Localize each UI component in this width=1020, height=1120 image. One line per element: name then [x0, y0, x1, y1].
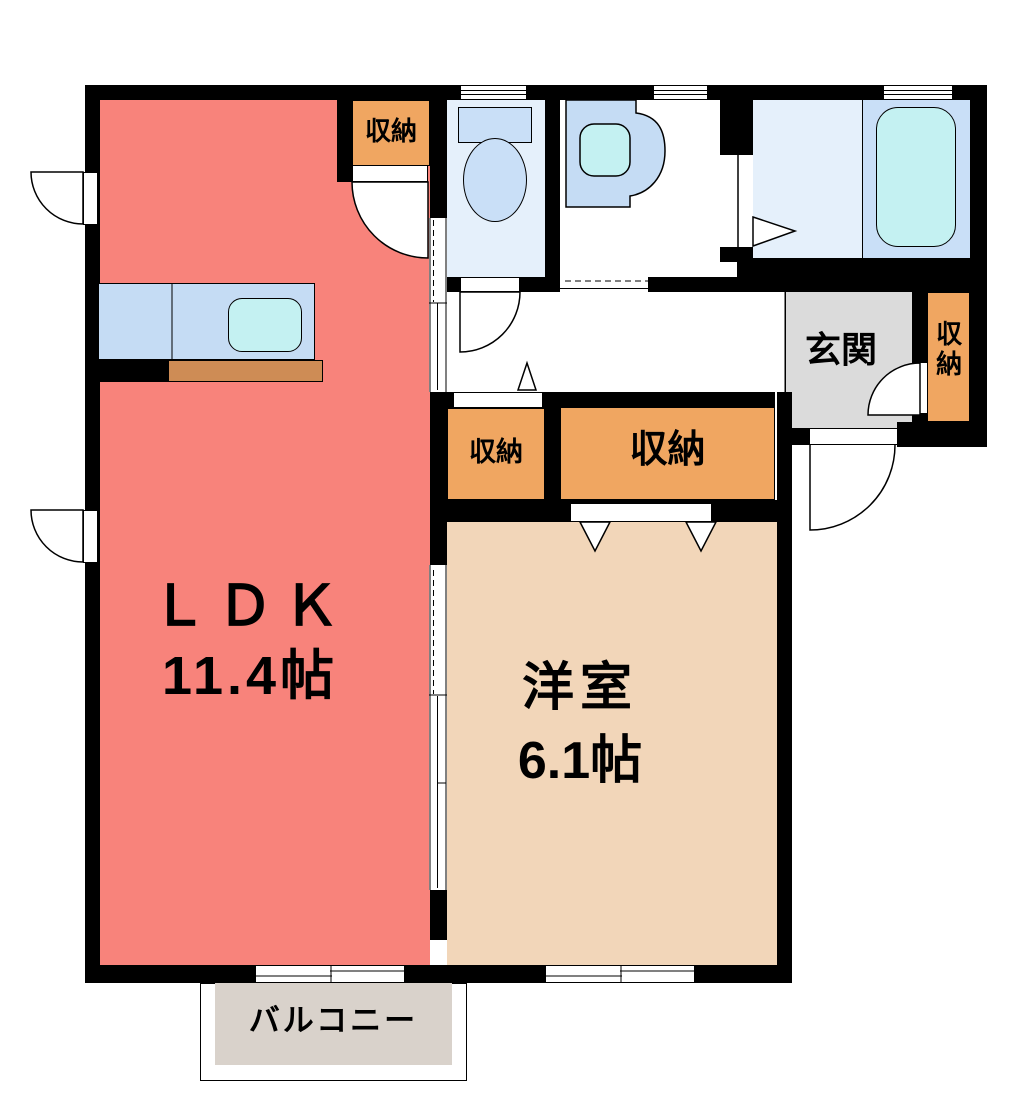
entrance-label: 玄関 [785, 330, 897, 370]
ldk-closet-label: 収納 [352, 117, 430, 146]
western-room-area: 6.1帖 [455, 733, 705, 790]
left-casement-window-1-leaf [83, 172, 98, 225]
hall-closet-small-label: 収納 [447, 438, 545, 468]
wall-right-lower [777, 392, 792, 983]
hall-closet-door-opening [453, 392, 543, 408]
entrance-closet-label: 収納 [933, 320, 962, 380]
wall-top [85, 85, 987, 100]
ldk-room-floor [100, 100, 432, 965]
washroom-window [653, 85, 708, 100]
wall-toilet-washroom [545, 100, 560, 292]
ldk-balcony-window [255, 965, 405, 983]
ldk-closet-door-leaf [352, 165, 428, 182]
ldk-label: ＬＤＫ 11.4帖 [115, 575, 385, 706]
ldk-area: 11.4帖 [115, 647, 385, 706]
wall-entrance-bottom-left [777, 428, 810, 445]
ldk-name: ＬＤＫ [115, 575, 385, 637]
toilet-window [460, 85, 527, 100]
toilet-door-swing [460, 292, 520, 352]
casement-window-2-swing [31, 510, 83, 562]
sliding-door-ldk-western [429, 565, 447, 890]
toilet-door-opening [460, 277, 520, 292]
wall-bathroom-bottom [737, 258, 987, 292]
wall-washroom-bottom [648, 277, 737, 292]
hall-closet-large-label: 収納 [560, 430, 775, 472]
western-room-label: 洋室 6.1帖 [455, 660, 705, 790]
entrance-door-swing [810, 445, 895, 530]
wall-entrance-bottom-right [897, 422, 987, 447]
washroom-sliding-door [560, 277, 648, 292]
casement-window-1-swing [31, 172, 83, 224]
bathtub [876, 107, 956, 247]
western-closet-door-opening [570, 503, 712, 522]
bathroom-window [883, 85, 953, 100]
sliding-door-ldk-hall [429, 218, 447, 392]
wall-closet-divider [545, 392, 560, 500]
wall-ldk-closet-left [337, 100, 352, 182]
floor-plan: ＬＤＫ 11.4帖 洋室 6.1帖 収納 収納 収納 玄関 収納 バルコニー [0, 0, 1020, 1120]
western-window [545, 965, 695, 983]
ldk-western-wall-notch [430, 940, 447, 965]
balcony-label: バルコニー [215, 1004, 452, 1038]
entrance-closet-door-leaf [912, 363, 927, 413]
bathroom-door-opening [720, 155, 753, 247]
wall-kitchen-stub [85, 360, 168, 382]
hall-closet-folding-door [518, 363, 536, 390]
western-room-name: 洋室 [455, 660, 705, 717]
kitchen-counter-edge [168, 360, 323, 382]
toilet-bowl [463, 138, 527, 222]
left-casement-window-2-leaf [83, 510, 98, 563]
washroom-floor [560, 100, 720, 280]
kitchen-sink [228, 298, 302, 352]
